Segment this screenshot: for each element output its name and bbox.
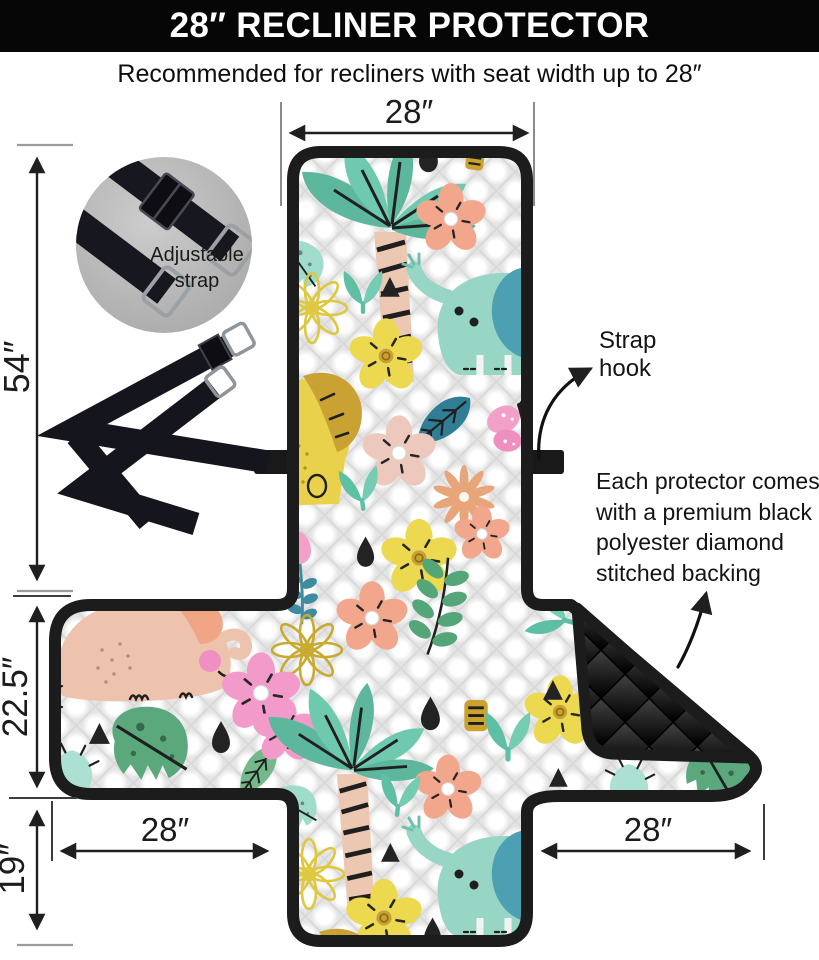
subtitle: Recommended for recliners with seat widt… [0, 60, 819, 89]
dim-top-width: 28″ [349, 93, 469, 131]
folded-corner-black-backing [577, 608, 748, 758]
straps-bundle [72, 321, 268, 524]
adjustable-strap-inset [26, 120, 258, 335]
strap-hook-label: Strap hook [599, 327, 699, 384]
header-bar: 28″ RECLINER PROTECTOR [0, 0, 819, 52]
dim-front-skirt: 19″ [0, 819, 34, 919]
strap-hook-arrow [539, 369, 590, 460]
dim-seat-depth: 22.5″ [0, 634, 37, 760]
right-strap-hook [528, 450, 564, 474]
tassel-icon [464, 700, 487, 731]
dim-right-wing: 28″ [588, 811, 708, 849]
backing-arrow [678, 594, 706, 667]
backing-note: Each protector comes with a premium blac… [596, 466, 819, 588]
adjustable-strap-label: Adjustable strap [139, 242, 255, 294]
dim-total-height: 54″ [0, 317, 38, 417]
dim-left-wing: 28″ [105, 811, 225, 849]
page-title: 28″ RECLINER PROTECTOR [170, 6, 650, 46]
product-infographic: 28″ RECLINER PROTECTOR Recommended for r… [0, 0, 819, 960]
